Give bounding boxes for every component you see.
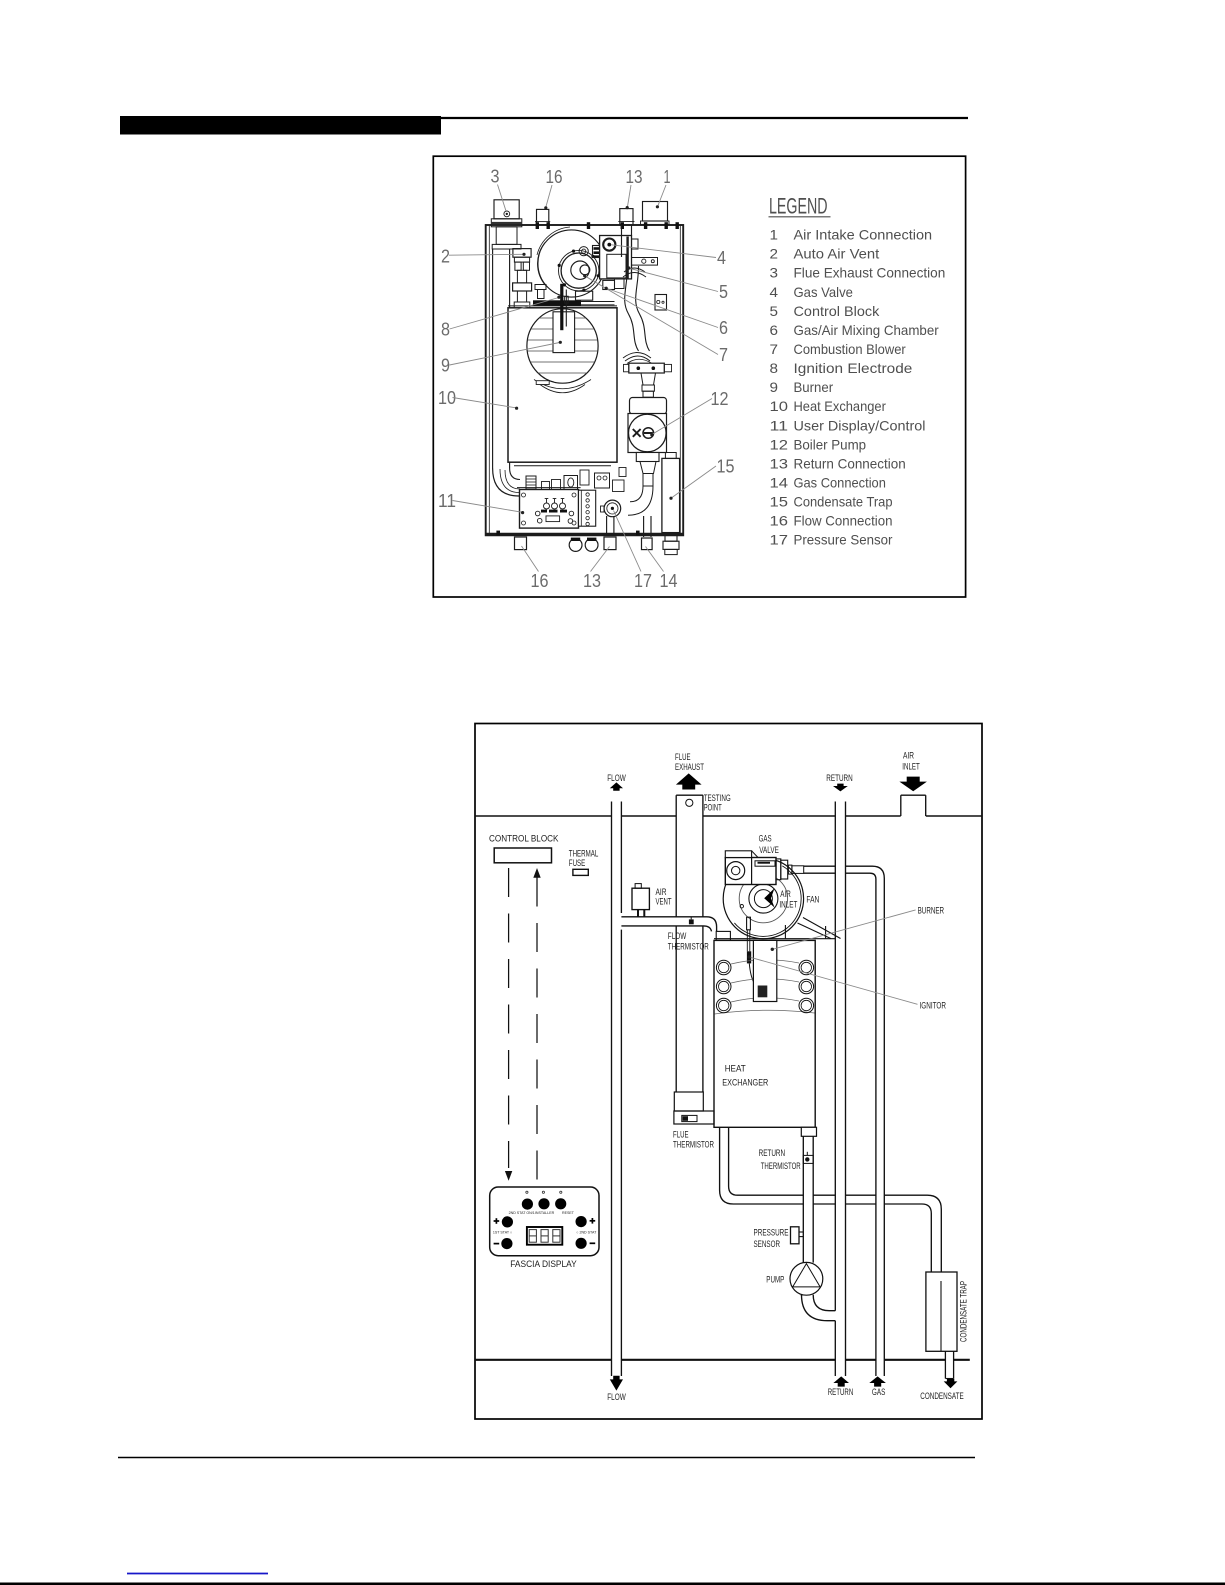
svg-text:Condensate Trap: Condensate Trap bbox=[794, 494, 893, 510]
svg-text:16: 16 bbox=[546, 166, 563, 187]
svg-text:THERMISTOR: THERMISTOR bbox=[673, 1140, 714, 1151]
svg-text:VENT: VENT bbox=[656, 897, 672, 908]
svg-text:Return Connection: Return Connection bbox=[794, 455, 906, 471]
svg-text:FUSE: FUSE bbox=[569, 858, 586, 869]
svg-text:Gas Valve: Gas Valve bbox=[794, 284, 854, 300]
svg-text:Flow Connection: Flow Connection bbox=[794, 513, 893, 529]
svg-text:3: 3 bbox=[770, 265, 779, 281]
svg-text:Ignition Electrode: Ignition Electrode bbox=[794, 360, 913, 376]
svg-text:INSTALLER: INSTALLER bbox=[535, 1211, 555, 1215]
svg-text:THERMISTOR: THERMISTOR bbox=[761, 1161, 801, 1172]
svg-text:13: 13 bbox=[583, 570, 601, 591]
svg-text:15: 15 bbox=[717, 456, 735, 477]
svg-text:SENSOR: SENSOR bbox=[754, 1239, 781, 1250]
svg-text:5: 5 bbox=[719, 281, 728, 302]
svg-text:10: 10 bbox=[770, 398, 789, 414]
svg-text:VALVE: VALVE bbox=[759, 845, 779, 856]
svg-text:POINT: POINT bbox=[704, 803, 722, 814]
svg-text:9: 9 bbox=[441, 355, 450, 376]
svg-text:14: 14 bbox=[770, 475, 789, 491]
svg-text:INLET: INLET bbox=[902, 762, 920, 773]
svg-text:Pressure Sensor: Pressure Sensor bbox=[794, 532, 893, 548]
svg-text:Flue Exhaust Connection: Flue Exhaust Connection bbox=[794, 265, 946, 281]
svg-text:8: 8 bbox=[770, 360, 779, 376]
svg-text:LEGEND: LEGEND bbox=[769, 194, 828, 219]
svg-text:RETURN: RETURN bbox=[828, 1387, 854, 1398]
svg-text:Boiler Pump: Boiler Pump bbox=[794, 436, 867, 452]
svg-text:Control Block: Control Block bbox=[794, 303, 881, 319]
svg-text:EXCHANGER: EXCHANGER bbox=[722, 1078, 768, 1089]
svg-text:FLOW: FLOW bbox=[607, 1392, 626, 1403]
svg-text:2: 2 bbox=[441, 246, 450, 267]
svg-text:6: 6 bbox=[719, 317, 728, 338]
svg-text:9: 9 bbox=[770, 379, 779, 395]
svg-text:2: 2 bbox=[770, 246, 779, 262]
svg-text:17: 17 bbox=[634, 570, 652, 591]
svg-text:○ 2ND STAT: ○ 2ND STAT bbox=[576, 1231, 597, 1235]
svg-text:1ST STAT ○: 1ST STAT ○ bbox=[493, 1231, 512, 1235]
svg-text:Auto Air Vent: Auto Air Vent bbox=[794, 246, 880, 262]
svg-text:Heat Exchanger: Heat Exchanger bbox=[794, 398, 887, 414]
svg-text:4: 4 bbox=[717, 247, 726, 268]
svg-text:16: 16 bbox=[770, 513, 789, 529]
svg-text:IGNITOR: IGNITOR bbox=[920, 1000, 947, 1011]
svg-text:Burner: Burner bbox=[794, 379, 834, 395]
svg-text:7: 7 bbox=[719, 344, 728, 365]
svg-text:1: 1 bbox=[664, 166, 671, 187]
svg-text:RETURN: RETURN bbox=[826, 773, 853, 784]
svg-text:3: 3 bbox=[491, 166, 500, 187]
svg-text:RESET: RESET bbox=[562, 1211, 575, 1215]
svg-text:CONTROL BLOCK: CONTROL BLOCK bbox=[489, 833, 559, 844]
svg-text:INLET: INLET bbox=[779, 899, 797, 910]
svg-text:GAS: GAS bbox=[872, 1387, 886, 1398]
svg-text:FLOW: FLOW bbox=[607, 773, 626, 784]
svg-text:RETURN: RETURN bbox=[759, 1148, 786, 1159]
svg-text:12: 12 bbox=[770, 436, 789, 452]
svg-text:4: 4 bbox=[770, 284, 779, 300]
svg-text:17: 17 bbox=[770, 532, 789, 548]
svg-text:12: 12 bbox=[711, 388, 729, 409]
svg-text:PUMP: PUMP bbox=[766, 1275, 784, 1286]
svg-text:User Display/Control: User Display/Control bbox=[794, 417, 926, 433]
svg-text:1: 1 bbox=[770, 227, 779, 243]
svg-text:8: 8 bbox=[441, 319, 450, 340]
svg-text:14: 14 bbox=[660, 570, 678, 591]
svg-text:5: 5 bbox=[770, 303, 779, 319]
svg-text:FASCIA DISPLAY: FASCIA DISPLAY bbox=[510, 1259, 577, 1270]
svg-text:11: 11 bbox=[770, 417, 789, 433]
svg-text:13: 13 bbox=[770, 455, 789, 471]
svg-text:AIR: AIR bbox=[903, 751, 914, 762]
svg-text:13: 13 bbox=[626, 166, 643, 187]
svg-text:GAS: GAS bbox=[759, 834, 772, 845]
svg-text:FAN: FAN bbox=[806, 895, 819, 906]
svg-text:15: 15 bbox=[770, 494, 789, 510]
svg-text:CONDENSATE: CONDENSATE bbox=[920, 1391, 964, 1402]
svg-text:THERMISTOR: THERMISTOR bbox=[668, 942, 709, 953]
svg-text:16: 16 bbox=[531, 570, 549, 591]
svg-text:Combustion Blower: Combustion Blower bbox=[794, 341, 907, 357]
svg-text:BURNER: BURNER bbox=[918, 906, 945, 917]
svg-text:2ND STAT ON/1: 2ND STAT ON/1 bbox=[509, 1211, 535, 1215]
svg-text:Gas Connection: Gas Connection bbox=[794, 475, 886, 491]
svg-text:Air Intake Connection: Air Intake Connection bbox=[794, 227, 933, 243]
svg-text:EXHAUST: EXHAUST bbox=[675, 762, 704, 773]
svg-text:HEAT: HEAT bbox=[725, 1064, 746, 1075]
svg-text:AIR: AIR bbox=[780, 889, 791, 900]
svg-text:Gas/Air Mixing Chamber: Gas/Air Mixing Chamber bbox=[794, 322, 940, 338]
svg-text:CONDENSATE TRAP: CONDENSATE TRAP bbox=[959, 1281, 969, 1342]
svg-text:7: 7 bbox=[770, 341, 779, 357]
svg-text:6: 6 bbox=[770, 322, 779, 338]
svg-text:PRESSURE: PRESSURE bbox=[754, 1228, 789, 1239]
